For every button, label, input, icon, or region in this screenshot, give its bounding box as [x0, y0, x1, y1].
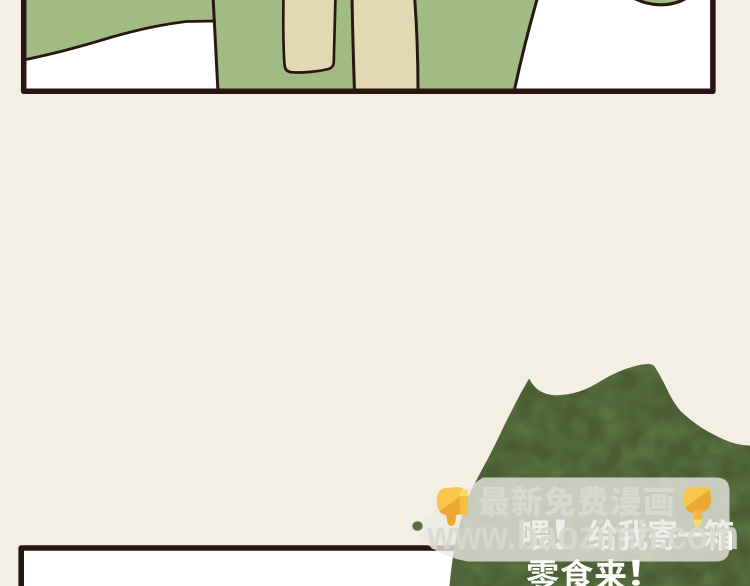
svg-text:www.baozimh.com: www.baozimh.com [426, 512, 739, 558]
